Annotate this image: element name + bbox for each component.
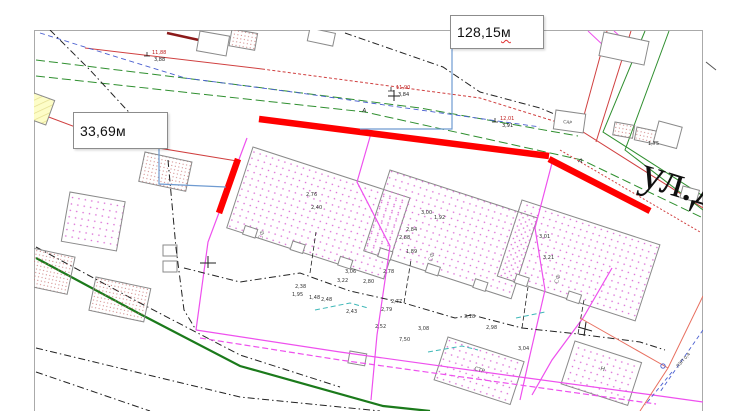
- measurement-value: 33,69м: [80, 123, 126, 139]
- elevation-marks-item: 1,92: [434, 215, 445, 221]
- elevation-marks-item: 3,00: [421, 210, 432, 216]
- elevation-marks-item: 2,52: [375, 324, 386, 330]
- dual-elevation-marks-item: 12,01: [500, 116, 514, 122]
- dual-elevation-marks-item: 11,88: [152, 50, 166, 56]
- elevation-marks-item: 2,98: [486, 325, 497, 331]
- elevation-marks-item: 2,88: [399, 235, 410, 241]
- measurement-box-128[interactable]: 128,15 м: [450, 15, 544, 49]
- dual-elevation-marks-item: 3,91: [502, 123, 513, 129]
- elevation-marks-item: 2,79: [381, 307, 392, 313]
- building: [61, 192, 125, 251]
- elevation-marks-item: 2,38: [295, 284, 306, 290]
- dual-elevation-marks-item: 3,88: [154, 57, 165, 63]
- dual-elevation-marks-item: 3,84: [398, 92, 409, 98]
- elevation-marks-item: 2,80: [363, 279, 374, 285]
- elevation-marks-item: 1,95: [292, 292, 303, 298]
- elevation-marks-item: 3,21: [543, 255, 554, 261]
- elevation-marks-item: 3,22: [337, 278, 348, 284]
- elevation-marks-item: 1,48: [309, 295, 320, 301]
- elevation-marks-item: 2,84: [406, 227, 417, 233]
- measurement-unit: м: [501, 24, 511, 40]
- elevation-marks-item: 2,76: [306, 192, 317, 198]
- elevation-marks-item: 2,78: [383, 269, 394, 275]
- elevation-marks-item: 3,04: [518, 346, 529, 352]
- elevation-marks-item: 2,48: [321, 297, 332, 303]
- elevation-marks-item: 7,50: [399, 337, 410, 343]
- elevation-marks-item: 3,06: [345, 269, 356, 275]
- elevation-marks-item: 3,01: [539, 234, 550, 240]
- shed: [163, 261, 177, 272]
- map-drawing: ул.Д 2,762,403,001,922,842,881,892,783,0…: [0, 0, 731, 411]
- elevation-marks-item: 3,08: [418, 326, 429, 332]
- measurement-box-33[interactable]: 33,69м: [73, 112, 168, 149]
- elevation-marks-item: 1,89: [406, 249, 417, 255]
- border-tick: [706, 62, 716, 70]
- elevation-marks-item: 2,77: [391, 299, 402, 305]
- site-plan-map: ул.Д 2,762,403,001,922,842,881,892,783,0…: [0, 0, 731, 411]
- elevation-marks-item: 1,75: [648, 141, 659, 147]
- elevation-marks-item: 2,43: [346, 309, 357, 315]
- building: [613, 122, 635, 138]
- elevation-marks-item: 3,18: [464, 314, 475, 320]
- shed: [163, 245, 177, 256]
- elevation-marks-item: 2,40: [311, 205, 322, 211]
- dual-elevation-marks-item: 11,90: [396, 85, 410, 91]
- measurement-value: 128,15: [457, 24, 501, 40]
